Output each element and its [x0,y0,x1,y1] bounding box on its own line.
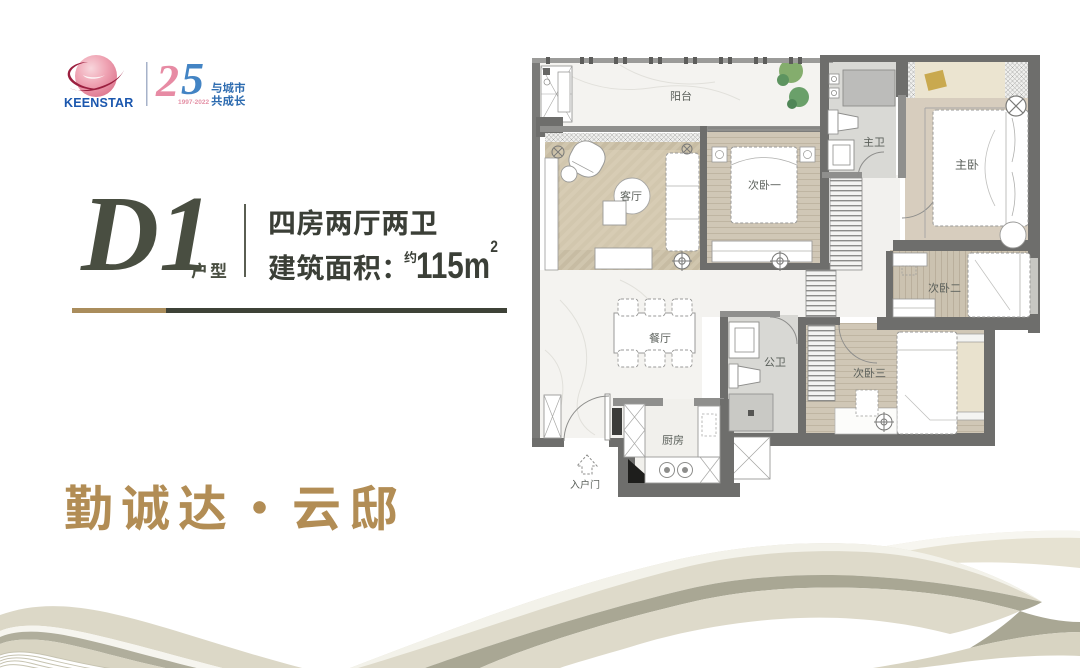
svg-text:2: 2 [490,238,498,257]
svg-text:115m: 115m [416,246,490,287]
